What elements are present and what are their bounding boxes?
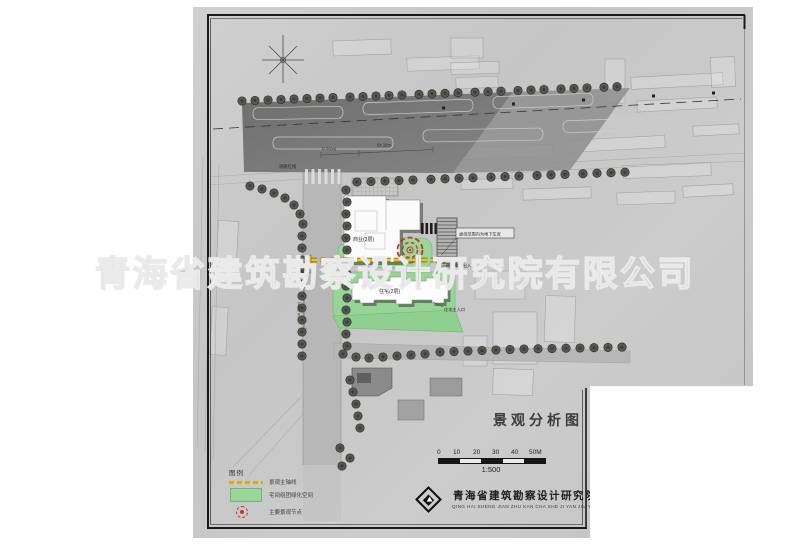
scale-bar-segments xyxy=(438,458,546,464)
dim-width-label: 12.50(m) xyxy=(321,147,337,151)
existing-buildings xyxy=(352,368,462,420)
scale-tick: 20 xyxy=(473,449,480,456)
residential-entrance-label: 住宅主入口 xyxy=(444,306,465,312)
garage-note-label: 虚线范围内为地下车库 xyxy=(459,230,501,237)
scale-tick: 10 xyxy=(453,449,460,456)
page: { "watermark": { "text": "青海省建筑勘察设计研究院有限… xyxy=(0,0,800,544)
scale-tick: 30 xyxy=(492,449,499,456)
scale-bar: 0 10 20 30 40 50M 1:500 xyxy=(437,449,553,479)
company-pinyin: QING HAI SHENG JIAN ZHU KAN CHA SHE JI Y… xyxy=(452,504,602,509)
scale-tick: 50M xyxy=(529,449,542,456)
garage-entrance-label: 地下车库出入口 xyxy=(446,262,475,269)
residential-building-label: 住宅(2层) xyxy=(379,288,400,295)
company-block: 青海省建筑勘察设计研究院 QING HAI SHENG JIAN ZHU KAN… xyxy=(413,483,593,525)
dim-length-label: 54.10m xyxy=(377,143,391,148)
legend-swatch-green xyxy=(230,488,262,502)
site-entrance-label: 小区主入口 xyxy=(291,268,311,274)
commercial-building-label: 商业(3层) xyxy=(353,236,374,243)
scale-tick: 40 xyxy=(511,449,518,456)
legend-swatch-axis xyxy=(229,481,263,484)
legend-header: 图例 xyxy=(229,467,244,477)
drawing-sheet: 12.50(m) 54.10m 16.20(m) 道路红线 商业(3层) 住宅(… xyxy=(193,7,753,538)
company-logo-icon xyxy=(415,486,442,513)
legend-label-axis: 景观主轴线 xyxy=(269,478,297,486)
legend-label-green: 宅间组团绿化空间 xyxy=(269,491,313,499)
scale-ratio: 1:500 xyxy=(455,465,527,474)
drawing-title: 景观分析图 xyxy=(493,410,583,430)
legend-swatch-node xyxy=(236,506,248,518)
company-name: 青海省建筑勘察设计研究院 xyxy=(453,488,597,503)
road-redline-label: 道路红线 xyxy=(279,163,297,170)
legend-label-node: 主要景观节点 xyxy=(269,508,302,516)
residential-building xyxy=(352,277,451,307)
dim-road-label: 16.20(m) xyxy=(297,301,301,317)
scale-tick: 0 xyxy=(437,449,441,456)
legend: 图例 景观主轴线 宅间组团绿化空间 主要景观节点 xyxy=(223,465,373,527)
compass-icon xyxy=(262,35,304,83)
